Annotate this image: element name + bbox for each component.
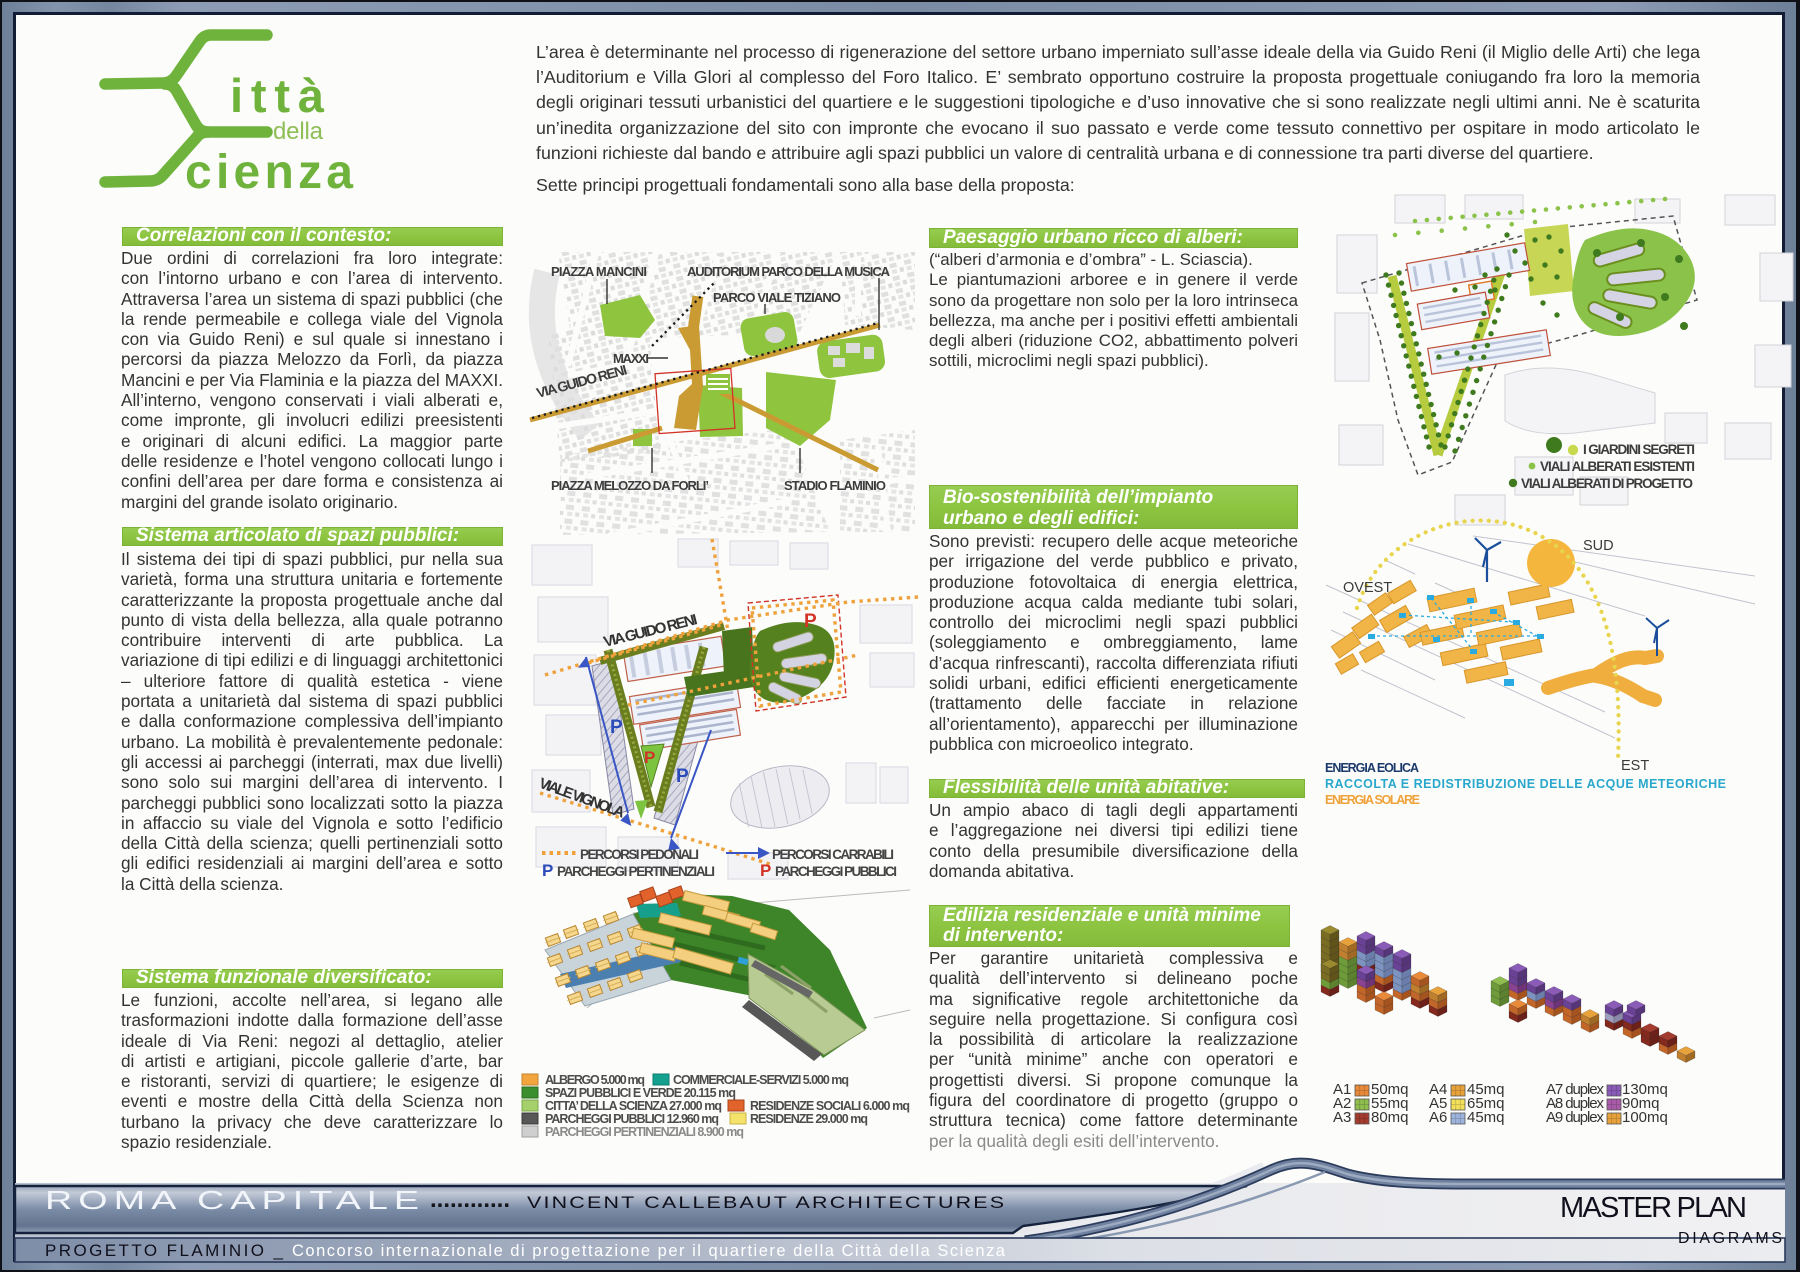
svg-text:P: P bbox=[542, 861, 553, 880]
svg-text:P: P bbox=[804, 611, 817, 632]
svg-text:CITTA’ DELLA SCIENZA 27.000 mq: CITTA’ DELLA SCIENZA 27.000 mq bbox=[545, 1099, 722, 1113]
svg-text:MASTER PLAN: MASTER PLAN bbox=[1560, 1192, 1747, 1224]
svg-text:COMMERCIALE-SERVIZI 5.000 mq: COMMERCIALE-SERVIZI 5.000 mq bbox=[673, 1073, 849, 1087]
svg-text:ENERGIA EOLICA: ENERGIA EOLICA bbox=[1325, 761, 1419, 775]
svg-text:RESIDENZE SOCIALI 6.000 mq: RESIDENZE SOCIALI 6.000 mq bbox=[750, 1099, 910, 1113]
svg-text:A9 duplex: A9 duplex bbox=[1546, 1109, 1605, 1126]
svg-text:100mq: 100mq bbox=[1622, 1109, 1668, 1126]
svg-text:PARCHEGGI PERTINENZIALI: PARCHEGGI PERTINENZIALI bbox=[557, 864, 715, 879]
svg-text:PARCO VIALE TIZIANO: PARCO VIALE TIZIANO bbox=[713, 290, 841, 305]
svg-text:VINCENT CALLEBAUT ARCHITECTURE: VINCENT CALLEBAUT ARCHITECTURES bbox=[527, 1194, 1005, 1212]
svg-text:PARCHEGGI PUBBLICI 12.960 mq: PARCHEGGI PUBBLICI 12.960 mq bbox=[545, 1112, 719, 1126]
svg-text:DIAGRAMS: DIAGRAMS bbox=[1678, 1230, 1782, 1247]
svg-text:PIAZZA MELOZZO DA FORLI’: PIAZZA MELOZZO DA FORLI’ bbox=[551, 478, 709, 493]
svg-text:PIAZZA MANCINI: PIAZZA MANCINI bbox=[551, 264, 647, 279]
svg-text:P: P bbox=[644, 748, 655, 767]
svg-text:RACCOLTA E REDISTRIBUZIONE DEL: RACCOLTA E REDISTRIBUZIONE DELLE ACQUE M… bbox=[1325, 777, 1726, 791]
svg-text:............: ............ bbox=[430, 1186, 510, 1213]
svg-text:SUD: SUD bbox=[1583, 538, 1614, 554]
svg-text:45mq: 45mq bbox=[1467, 1109, 1505, 1126]
svg-text:P: P bbox=[676, 766, 689, 787]
svg-text:PERCORSI CARRABILI: PERCORSI CARRABILI bbox=[772, 847, 894, 862]
svg-text:PARCHEGGI PERTINENZIALI 8.900: PARCHEGGI PERTINENZIALI 8.900 mq bbox=[545, 1125, 744, 1139]
svg-text:ittà: ittà bbox=[230, 69, 325, 122]
svg-text:P: P bbox=[760, 861, 771, 880]
svg-text:Concorso internazionale di pro: Concorso internazionale di progettazione… bbox=[292, 1242, 1006, 1260]
svg-text:A3: A3 bbox=[1333, 1109, 1351, 1126]
svg-text:AUDITORIUM PARCO DELLA MUSICA: AUDITORIUM PARCO DELLA MUSICA bbox=[687, 264, 891, 279]
svg-text:SPAZI PUBBLICI E VERDE 20.115: SPAZI PUBBLICI E VERDE 20.115 mq bbox=[545, 1086, 736, 1100]
svg-text:RESIDENZE 29.000 mq: RESIDENZE 29.000 mq bbox=[750, 1112, 868, 1126]
svg-text:EST: EST bbox=[1621, 758, 1649, 774]
svg-text:PERCORSI PEDONALI: PERCORSI PEDONALI bbox=[580, 847, 699, 862]
svg-text:cienza: cienza bbox=[185, 146, 353, 199]
svg-text:80mq: 80mq bbox=[1371, 1109, 1409, 1126]
svg-text:OVEST: OVEST bbox=[1343, 580, 1392, 596]
svg-text:ENERGIA SOLARE: ENERGIA SOLARE bbox=[1325, 793, 1420, 807]
svg-text:A6: A6 bbox=[1429, 1109, 1447, 1126]
svg-text:STADIO FLAMINIO: STADIO FLAMINIO bbox=[784, 478, 886, 493]
svg-text:VIALI ALBERATI ESISTENTI: VIALI ALBERATI ESISTENTI bbox=[1540, 459, 1695, 474]
svg-text:I GIARDINI SEGRETI: I GIARDINI SEGRETI bbox=[1583, 442, 1695, 457]
svg-text:ALBERGO 5.000 mq: ALBERGO 5.000 mq bbox=[545, 1073, 645, 1087]
svg-text:della: della bbox=[273, 118, 324, 145]
svg-text:VIALI ALBERATI DI PROGETTO: VIALI ALBERATI DI PROGETTO bbox=[1521, 476, 1693, 491]
svg-text:P: P bbox=[610, 717, 623, 738]
svg-text:PARCHEGGI PUBBLICI: PARCHEGGI PUBBLICI bbox=[775, 864, 897, 879]
